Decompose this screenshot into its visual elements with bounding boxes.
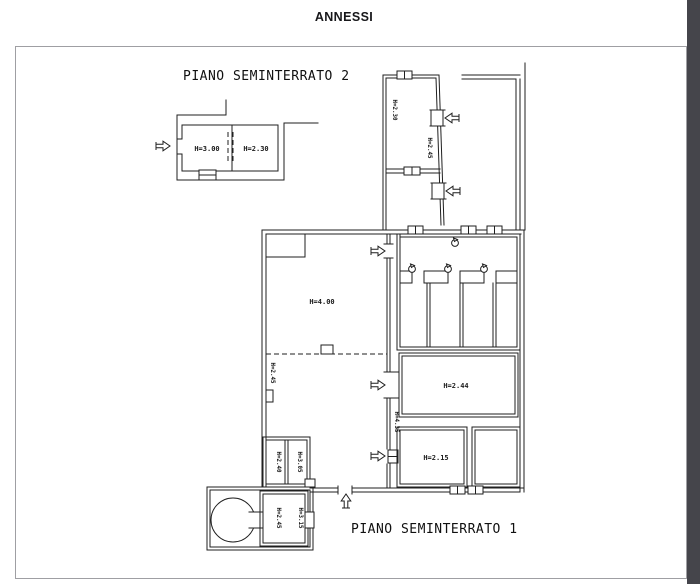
stalls-outer-walls bbox=[397, 234, 520, 350]
stall-partitions bbox=[427, 283, 496, 347]
room-label-rotated: H=3.15 bbox=[297, 508, 303, 529]
room-label: H=3.00 bbox=[194, 145, 219, 153]
room-label-rotated: H=2.45 bbox=[426, 138, 432, 159]
room-right-inner bbox=[475, 430, 517, 484]
plan1-topright-boundary bbox=[462, 63, 525, 230]
room-label-rotated: H=2.40 bbox=[275, 452, 281, 473]
plan2-boundary-wall bbox=[177, 100, 318, 180]
fixture-icon bbox=[409, 264, 416, 272]
room-label: H=2.30 bbox=[243, 145, 268, 153]
room-label: H=2.15 bbox=[423, 454, 448, 462]
window-icon bbox=[487, 226, 502, 234]
floor-plan-drawing: PIANO SEMINTERRATO 2 H=3.00 H=2.30 bbox=[0, 0, 700, 584]
fixture-icon bbox=[445, 264, 452, 272]
plan1-shaft: H=4.35 bbox=[341, 234, 399, 508]
plan1-title: PIANO SEMINTERRATO 1 bbox=[351, 522, 518, 537]
outer-wall-bottom bbox=[310, 488, 524, 492]
main-entrance-arrow-icon bbox=[341, 494, 351, 508]
plan2-title: PIANO SEMINTERRATO 2 bbox=[183, 69, 350, 84]
plan1-main-hall: H=4.00 bbox=[266, 234, 387, 354]
pillar-symbol bbox=[321, 345, 333, 354]
room-right-outer bbox=[472, 427, 520, 487]
stalls-front-wall bbox=[400, 271, 517, 283]
room-label-rotated: H=2.45 bbox=[275, 508, 281, 529]
entrance-arrow-icon bbox=[445, 113, 459, 123]
plan1-right-rooms: H=2.44 H=2.15 bbox=[397, 353, 520, 494]
boundary-walls bbox=[462, 63, 525, 230]
room-label-rotated: H=4.35 bbox=[393, 412, 399, 433]
top-wing-walls bbox=[383, 75, 444, 230]
window-icon bbox=[408, 226, 423, 234]
entrance-arrow-icon bbox=[446, 186, 460, 196]
top-wing-door-1 bbox=[430, 110, 445, 126]
entrance-arrow-icon bbox=[371, 380, 385, 390]
partition-threshold bbox=[404, 167, 420, 175]
door-notch bbox=[305, 512, 314, 528]
entrance-arrow-icon bbox=[371, 246, 385, 256]
window-icon bbox=[450, 486, 465, 494]
outer-wall-right bbox=[520, 230, 524, 492]
wall-notch bbox=[266, 390, 273, 402]
plan2-threshold bbox=[199, 170, 216, 180]
cistern-circle bbox=[211, 498, 255, 542]
room-label-rotated: H=2.45 bbox=[269, 363, 275, 384]
room-label: H=2.44 bbox=[443, 382, 468, 390]
plan1-cellar-block: H=2.45 H=3.15 bbox=[207, 487, 314, 550]
plan2-group: PIANO SEMINTERRATO 2 H=3.00 H=2.30 bbox=[156, 69, 350, 180]
small-rooms-divider bbox=[285, 440, 288, 484]
room-label: H=4.00 bbox=[309, 298, 334, 306]
plan2-entrance-arrow-icon bbox=[156, 141, 170, 151]
alcove-partition bbox=[266, 234, 305, 257]
room-label-rotated: H=2.30 bbox=[391, 100, 397, 121]
window-icon bbox=[468, 486, 483, 494]
window-icon bbox=[461, 226, 476, 234]
entrance-arrow-icon bbox=[371, 451, 385, 461]
outer-wall-top bbox=[262, 230, 525, 234]
window-icon bbox=[397, 71, 412, 79]
document-page: ANNESSI PIANO SEMINTERRATO 2 bbox=[0, 0, 700, 584]
plan1-top-wing: H=2.30 H=2.45 bbox=[383, 71, 460, 230]
room-label-rotated: H=3.05 bbox=[296, 452, 302, 473]
fixture-icon bbox=[481, 264, 488, 272]
plan1-stalls-block bbox=[397, 226, 520, 350]
door-threshold bbox=[305, 479, 315, 487]
top-wing-door-2 bbox=[431, 183, 446, 199]
plan1-small-rooms: H=2.40 H=3.05 bbox=[263, 437, 315, 487]
fixture-icon bbox=[452, 238, 459, 246]
